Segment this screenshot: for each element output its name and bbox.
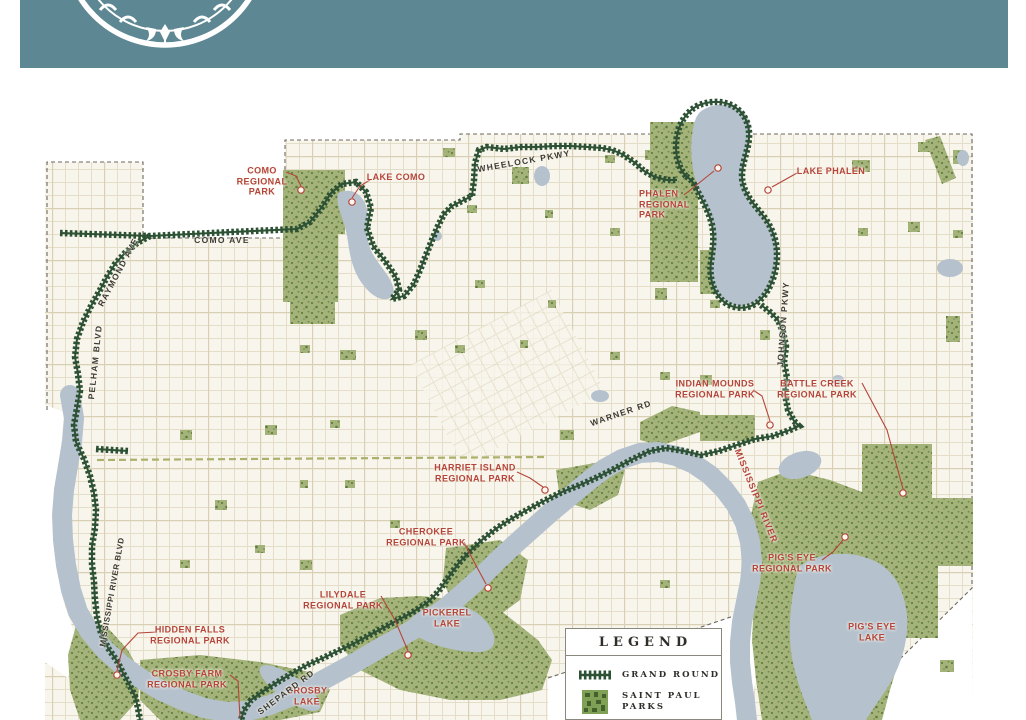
legend-grand-round-label: GRAND ROUND [622,670,720,681]
saint-paul-map [0,0,1026,720]
label-lake-phalen: LAKE PHALEN [797,166,865,177]
label-lilydale-regional-park: LILYDALE REGIONAL PARK [303,590,383,611]
legend-item-saint-paul-parks: SAINT PAUL PARKS [577,689,702,715]
legend-box: LEGEND GRAND ROUND SAINT PAUL PARKS [565,628,722,720]
label-harriet-island-regional-park: HARRIET ISLAND REGIONAL PARK [434,463,516,484]
page: COMO REGIONAL PARK LAKE COMO PHALEN REGI… [0,0,1026,720]
label-como-regional-park: COMO REGIONAL PARK [237,165,288,197]
label-lake-como: LAKE COMO [367,172,426,183]
label-hidden-falls-regional-park: HIDDEN FALLS REGIONAL PARK [150,625,230,646]
label-como-ave: COMO AVE [194,235,250,245]
parks-swatch-icon [577,689,613,715]
label-crosby-farm-regional-park: CROSBY FARM REGIONAL PARK [147,669,227,690]
legend-item-grand-round: GRAND ROUND [577,669,720,681]
grand-round-swatch-icon [577,669,613,681]
label-indian-mounds-regional-park: INDIAN MOUNDS REGIONAL PARK [675,379,755,400]
label-battle-creek-regional-park: BATTLE CREEK REGIONAL PARK [777,379,857,400]
label-pickerel-lake: PICKEREL LAKE [423,608,472,629]
label-cherokee-regional-park: CHEROKEE REGIONAL PARK [386,527,466,548]
label-phalen-regional-park: PHALEN REGIONAL PARK [639,188,690,220]
legend-title: LEGEND [566,629,721,656]
label-pigs-eye-regional-park: PIG'S EYE REGIONAL PARK [752,553,832,574]
legend-parks-label: SAINT PAUL PARKS [622,691,702,713]
label-pigs-eye-lake: PIG'S EYE LAKE [848,622,896,643]
